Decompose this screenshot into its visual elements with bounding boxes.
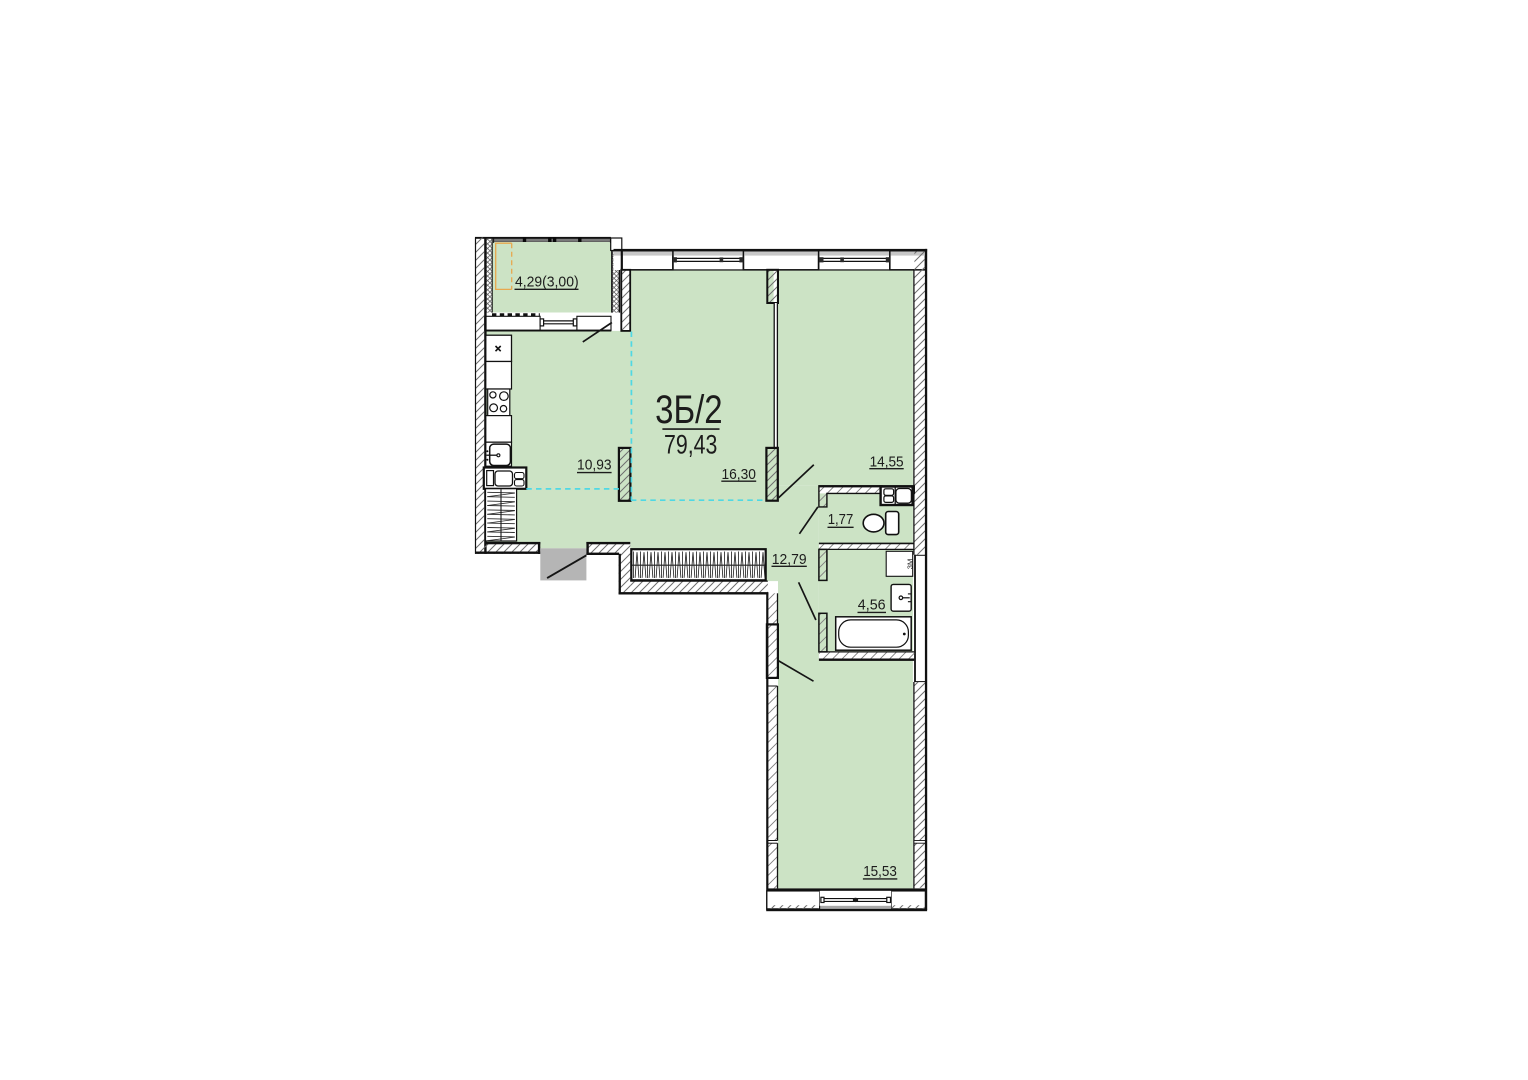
svg-text:14,55: 14,55 [870, 453, 904, 470]
svg-text:3Б/2: 3Б/2 [655, 388, 723, 432]
svg-text:1,77: 1,77 [828, 511, 854, 528]
svg-text:79,43: 79,43 [664, 429, 717, 459]
svg-text:12,79: 12,79 [772, 551, 807, 568]
svg-text:3М: 3М [905, 559, 914, 569]
svg-text:16,30: 16,30 [721, 466, 756, 483]
svg-text:15,53: 15,53 [863, 863, 897, 880]
svg-text:10,93: 10,93 [577, 456, 612, 473]
svg-text:4,56: 4,56 [858, 597, 886, 614]
svg-text:4,29(3,00): 4,29(3,00) [515, 274, 579, 291]
